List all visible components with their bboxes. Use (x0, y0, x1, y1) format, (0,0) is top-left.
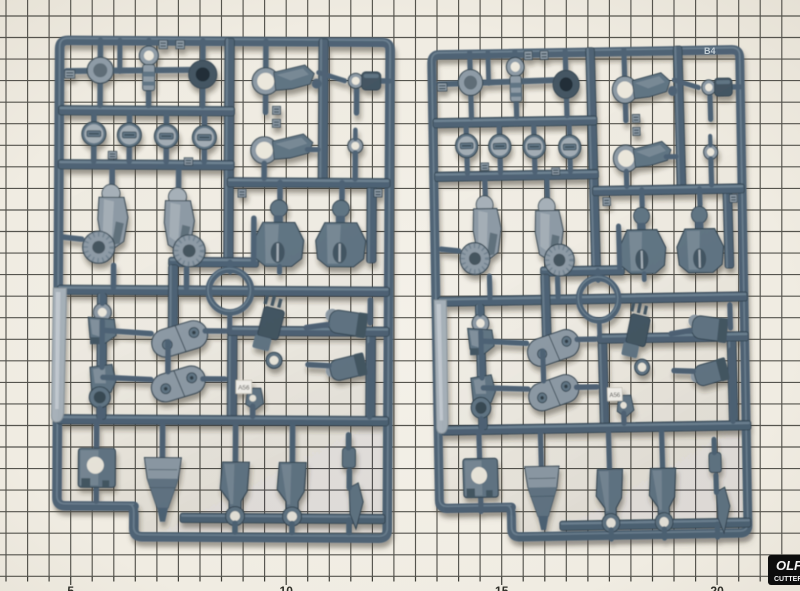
svg-text:B4: B4 (704, 46, 716, 56)
svg-text:20: 20 (710, 584, 724, 591)
svg-text:CUTTER: CUTTER (774, 576, 800, 583)
svg-text:5: 5 (67, 584, 74, 591)
svg-text:OLF: OLF (776, 558, 800, 573)
svg-text:10: 10 (280, 584, 294, 591)
svg-text:15: 15 (495, 584, 509, 591)
